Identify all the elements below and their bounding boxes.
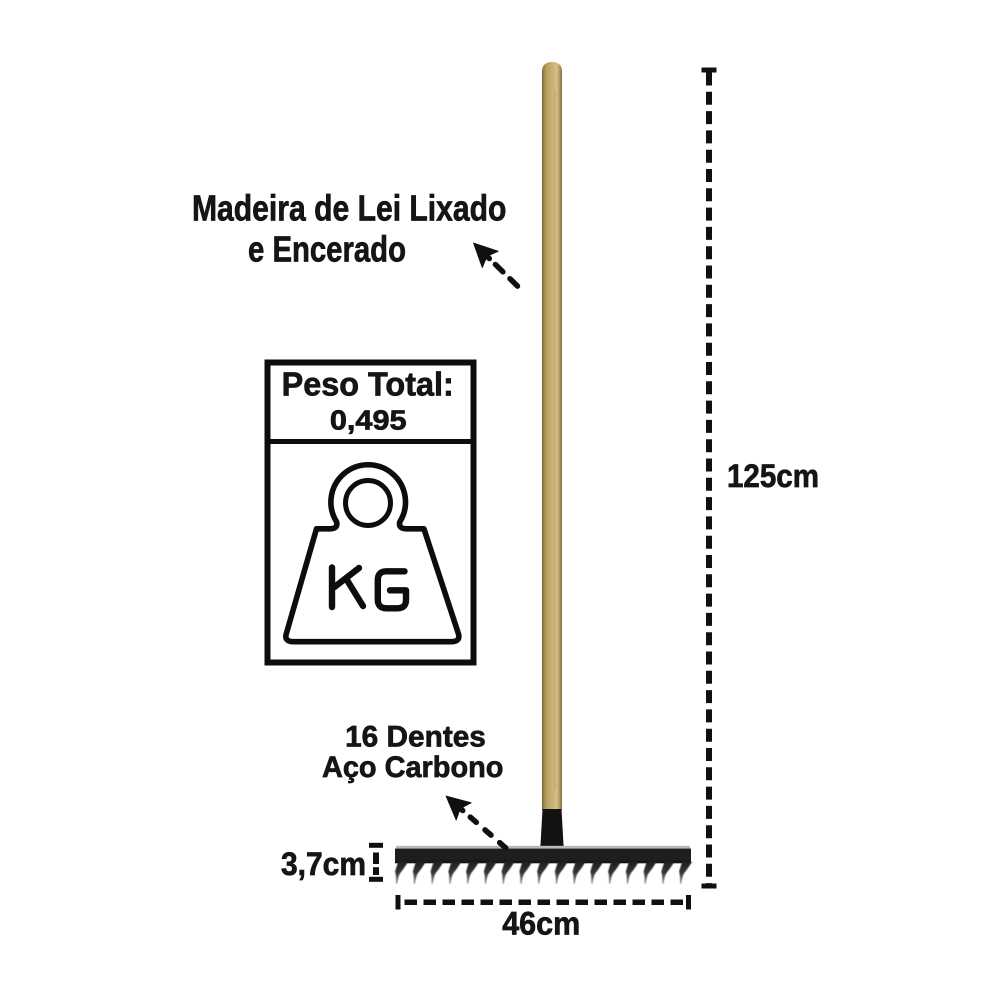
svg-text:Aço Carbono: Aço Carbono [322,751,504,784]
svg-text:3,7cm: 3,7cm [281,846,366,882]
svg-text:46cm: 46cm [502,906,580,942]
svg-text:16 Dentes: 16 Dentes [345,720,486,753]
svg-text:125cm: 125cm [727,458,819,494]
svg-text:e Encerado: e Encerado [248,229,406,270]
svg-text:0,495: 0,495 [330,404,407,435]
svg-text:Peso Total:: Peso Total: [282,366,454,403]
svg-text:Madeira de Lei Lixado: Madeira de Lei Lixado [192,188,507,229]
